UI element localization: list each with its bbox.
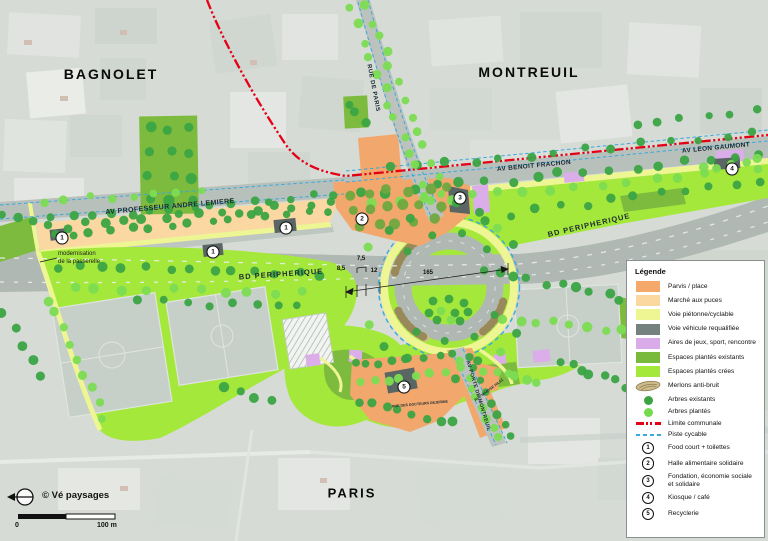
attribution: © Vé paysages <box>42 490 109 501</box>
legend-item-label: Espaces plantés crées <box>668 368 734 376</box>
dimension-label: 8,5 <box>337 266 345 272</box>
legend-item-label: Kiosque / café <box>668 494 710 502</box>
legend-number-badge: 4 <box>642 492 655 505</box>
legend-swatch <box>636 295 660 306</box>
legend-item-label: Arbres existants <box>668 396 715 404</box>
legend-item-label: Voie piétonne/cyclable <box>668 311 734 319</box>
legend-number-badge: 2 <box>642 457 655 470</box>
legend-swatch <box>636 281 660 292</box>
legend-swatch <box>636 309 660 320</box>
legend-item-label: Aires de jeux, sport, rencontre <box>668 339 756 347</box>
dimension-label: 12 <box>371 268 378 274</box>
dimension-label: 7,5 <box>357 256 365 262</box>
map-marker-5: 5 <box>398 381 411 394</box>
map-marker-2: 2 <box>356 213 369 226</box>
legend-row: Parvis / place <box>635 281 756 292</box>
legend-row: Arbres plantés <box>635 408 756 417</box>
map-marker-4: 4 <box>726 163 739 176</box>
legend-item-label: Voie véhicule requalifiée <box>668 325 739 333</box>
legend-row: Limite communale <box>635 420 756 428</box>
legend-row: 5Recyclerie <box>635 508 756 521</box>
map-marker-1: 1 <box>207 246 220 259</box>
scale-zero-label: 0 <box>15 522 19 529</box>
legend-row: 4Kiosque / café <box>635 492 756 505</box>
legend-swatch <box>636 352 660 363</box>
city-label: BAGNOLET <box>64 66 159 82</box>
passerelle-annotation: modernisation de la passerelle <box>58 251 100 266</box>
legend-item-label: Parvis / place <box>668 283 708 291</box>
legend-number-badge: 5 <box>642 508 655 521</box>
scale-max-label: 100 m <box>97 522 117 529</box>
boundary-line-icon <box>636 422 661 425</box>
legend-item-label: Recyclerie <box>668 510 699 518</box>
urban-plan-map: BAGNOLETMONTREUILPARISAV PROFESSEUR ANDR… <box>0 0 768 541</box>
legend-swatch <box>636 366 660 377</box>
legend-row: Arbres existants <box>635 396 756 405</box>
legend-item-label: Marché aux puces <box>668 297 722 305</box>
legend-row: 3Fondation, économie sociale et solidair… <box>635 473 756 489</box>
legend-number-badge: 1 <box>642 442 655 455</box>
map-marker-3: 3 <box>454 192 467 205</box>
city-label: PARIS <box>328 486 377 501</box>
legend-row: Voie véhicule requalifiée <box>635 324 756 335</box>
merlon-icon <box>635 380 661 392</box>
cycle-line-icon <box>636 434 661 436</box>
legend-row: Espaces plantés crées <box>635 366 756 377</box>
legend-item-label: Espaces plantés existants <box>668 354 744 362</box>
dimension-label: 165 <box>423 270 433 276</box>
tree-dot-icon <box>644 408 653 417</box>
legend-row: Marché aux puces <box>635 295 756 306</box>
legend-row: 2Halle alimentaire solidaire <box>635 457 756 470</box>
legend-item-label: Arbres plantés <box>668 408 711 416</box>
legend-row: Aires de jeux, sport, rencontre <box>635 338 756 349</box>
legend-item-label: Piste cycable <box>668 431 707 439</box>
tree-dot-icon <box>644 396 653 405</box>
legend-row: Piste cycable <box>635 431 756 439</box>
legend-row: 1Food court + toilettes <box>635 442 756 455</box>
legend-item-label: Fondation, économie sociale et solidaire <box>668 473 756 489</box>
scale-bar <box>18 514 115 519</box>
map-marker-1: 1 <box>56 232 69 245</box>
legend-item-label: Halle alimentaire solidaire <box>668 460 744 468</box>
map-marker-1: 1 <box>280 222 293 235</box>
legend-row: Merlons anti-bruit <box>635 380 756 392</box>
legend-title: Légende <box>635 267 756 276</box>
legend-items: Parvis / placeMarché aux pucesVoie piéto… <box>635 281 756 520</box>
legend-item-label: Limite communale <box>668 420 722 428</box>
legend-item-label: Merlons anti-bruit <box>668 382 719 390</box>
legend-row: Espaces plantés existants <box>635 352 756 363</box>
legend-row: Voie piétonne/cyclable <box>635 309 756 320</box>
legend-panel: Légende Parvis / placeMarché aux pucesVo… <box>626 260 765 538</box>
annotation-line1: modernisation <box>58 251 100 259</box>
city-label: MONTREUIL <box>478 64 579 80</box>
legend-number-badge: 3 <box>642 475 655 488</box>
annotation-line2: de la passerelle <box>58 259 100 267</box>
legend-swatch <box>636 324 660 335</box>
legend-swatch <box>636 338 660 349</box>
legend-item-label: Food court + toilettes <box>668 444 730 452</box>
